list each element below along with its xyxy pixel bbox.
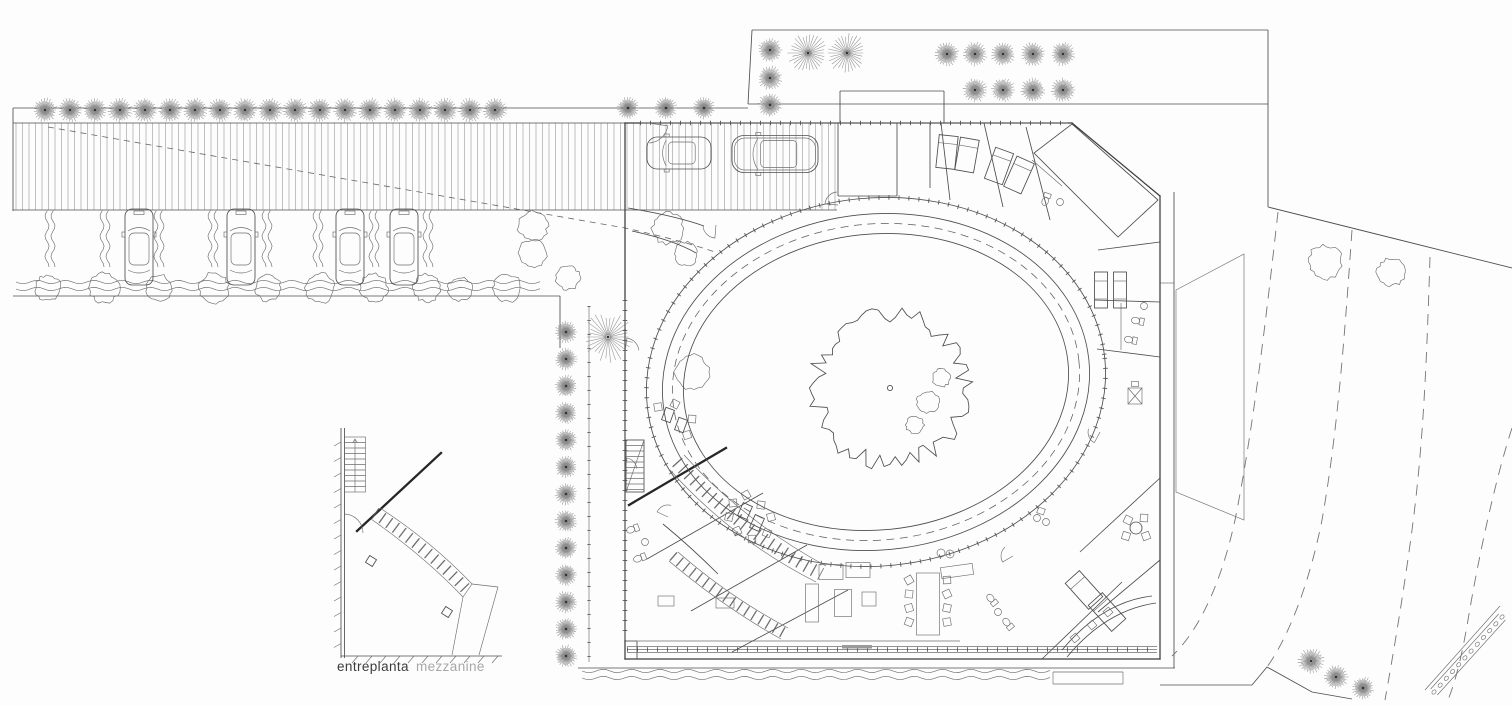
bush-icon xyxy=(146,275,172,302)
toilet-tank xyxy=(1132,337,1138,345)
fixture-circle xyxy=(1057,199,1064,206)
tree-trunk xyxy=(974,89,977,92)
furniture-rect xyxy=(806,584,819,622)
curved-stair-band xyxy=(669,552,788,639)
inset-band-line xyxy=(479,587,498,655)
car-rear-window xyxy=(339,270,361,273)
door-swing-arc xyxy=(657,505,671,517)
boundary-line xyxy=(1425,606,1500,690)
chair-icon xyxy=(670,399,680,409)
tree-trunk xyxy=(1002,53,1005,56)
tree-icon xyxy=(59,98,81,122)
tree-trunk xyxy=(974,53,977,56)
climber-strip xyxy=(160,211,164,267)
bed-frame xyxy=(936,135,958,170)
toilet-icon xyxy=(633,553,647,564)
gravel-stone xyxy=(1487,628,1493,634)
tree-trunk xyxy=(319,109,322,112)
tree-trunk xyxy=(1062,89,1065,92)
chair-icon xyxy=(942,589,952,599)
lounger-frame xyxy=(1095,272,1108,308)
partition-wall xyxy=(1042,582,1122,659)
tree-trunk xyxy=(444,109,447,112)
tree-icon xyxy=(935,43,959,67)
tree-spokes xyxy=(787,35,825,71)
tree-trunk xyxy=(565,628,568,631)
chair-icon xyxy=(732,526,742,536)
furniture-rect xyxy=(835,590,852,617)
tree-trunk xyxy=(469,109,472,112)
hedge-line xyxy=(582,669,1050,672)
car-mirror xyxy=(333,232,336,237)
partition-wall xyxy=(1098,242,1160,250)
inset-door-arc xyxy=(345,514,364,533)
gravel-stone xyxy=(1443,675,1449,681)
tree-icon xyxy=(556,618,577,639)
climber-strip xyxy=(268,211,272,267)
fixture-circle xyxy=(1043,519,1050,526)
furniture-rect xyxy=(1132,382,1139,387)
car-roof xyxy=(231,233,251,265)
tree-trunk xyxy=(769,49,772,52)
tree-trunk xyxy=(369,109,372,112)
bed-frame xyxy=(1004,156,1035,194)
toilet-bowl xyxy=(985,593,995,604)
boundary-line xyxy=(1268,207,1512,268)
toilet-tank xyxy=(633,524,640,532)
gravel-stone xyxy=(1462,655,1468,661)
car-plate xyxy=(399,211,409,215)
tree-icon xyxy=(458,98,482,123)
site-plan-drawing: entreplantamezzanine xyxy=(0,0,1512,706)
climber-strip xyxy=(313,211,317,267)
mezzanine-inset-layer xyxy=(334,428,502,663)
car-mirror xyxy=(387,232,390,237)
tree-trunk xyxy=(119,109,122,112)
tree-icon xyxy=(1021,78,1046,102)
fixture-circle xyxy=(995,609,1002,616)
bush-icon xyxy=(1376,258,1406,287)
car-windshield xyxy=(230,228,252,232)
road-dashed-edge xyxy=(1385,257,1430,700)
tree-icon xyxy=(555,565,577,586)
east-deck-hatch xyxy=(1176,254,1244,520)
car-roof xyxy=(394,233,414,265)
tree-icon xyxy=(308,99,331,122)
bed-icon xyxy=(936,135,958,170)
tree-trunk xyxy=(244,109,247,112)
tree-trunk xyxy=(94,109,97,112)
tree-trunk xyxy=(44,109,47,112)
tree-icon xyxy=(1324,666,1349,690)
tree-trunk xyxy=(1032,89,1035,92)
tree-icon xyxy=(759,38,783,62)
tree-trunk xyxy=(769,77,772,80)
tree-trunk xyxy=(565,331,568,334)
gravel-stone xyxy=(1474,641,1480,647)
door-swing-arc xyxy=(1001,547,1013,562)
inset-stair xyxy=(345,437,366,492)
tree-icon xyxy=(434,98,457,122)
climber-strip xyxy=(51,211,55,267)
roof-terrace-crosshatch xyxy=(1034,124,1158,237)
car-top-icon xyxy=(333,209,367,285)
tree-icon xyxy=(555,375,576,396)
tree-icon xyxy=(1022,42,1045,65)
south-boundary-line xyxy=(1160,667,1352,699)
tree-icon xyxy=(1352,677,1374,700)
gravel-stone xyxy=(1468,648,1474,654)
climber-strip xyxy=(106,211,110,267)
toilet-tank xyxy=(640,553,647,561)
tree-icon xyxy=(1052,42,1075,66)
courtyard-tree-foliage xyxy=(933,369,951,388)
inset-wall-tick xyxy=(334,628,341,632)
inset-wall-tick xyxy=(334,613,341,617)
bed-frame xyxy=(984,147,1013,185)
tree-trunk xyxy=(846,52,849,55)
furniture-rect xyxy=(917,573,940,635)
tree-icon xyxy=(333,98,357,122)
tree-icon xyxy=(963,42,987,67)
furniture-rect xyxy=(846,563,870,578)
tree-icon xyxy=(158,99,182,122)
entry-mat xyxy=(842,645,872,649)
furniture-rect xyxy=(1070,633,1080,643)
tree-icon xyxy=(555,483,577,505)
car-windshield xyxy=(393,228,415,232)
path-entry-curve xyxy=(663,524,718,574)
courtyard-tree-canopy xyxy=(809,308,972,469)
inset-wall-tick xyxy=(334,535,341,539)
inset-band-line xyxy=(452,597,463,655)
inset-wall-tick xyxy=(334,520,341,524)
climber-strip xyxy=(423,211,427,267)
bed-frame xyxy=(1088,593,1126,632)
car-mirror xyxy=(255,232,258,237)
tree-trunk xyxy=(607,336,610,339)
inset-post xyxy=(441,606,452,617)
climber-strip xyxy=(100,211,104,267)
car-plate xyxy=(345,211,355,215)
partition-wall xyxy=(647,493,763,559)
chair-icon xyxy=(757,501,765,509)
tree-icon xyxy=(556,591,577,613)
partition-wall xyxy=(1094,300,1160,302)
tree-trunk xyxy=(627,107,630,110)
toilet-icon xyxy=(985,593,999,607)
car-roof xyxy=(340,233,360,265)
road-dashed-edge xyxy=(1267,230,1352,667)
bed-icon xyxy=(1088,593,1126,632)
climber-strip xyxy=(319,211,323,267)
climber-strip xyxy=(214,211,218,267)
courtyard-facade xyxy=(628,175,1124,589)
tree-icon xyxy=(555,348,577,371)
climber-strip xyxy=(208,211,212,267)
car-rear-window xyxy=(230,270,252,273)
bed-pillow-line xyxy=(959,145,978,148)
bush-icon xyxy=(674,354,710,390)
chair-icon xyxy=(905,590,913,598)
inset-band-treads xyxy=(375,513,467,590)
path-center-dashed xyxy=(657,204,1096,561)
toilet-icon xyxy=(1124,335,1138,344)
toilet-icon xyxy=(1131,316,1145,325)
band-treads xyxy=(677,462,821,574)
tree-icon xyxy=(556,429,577,451)
inset-bold-wall xyxy=(357,453,441,531)
car-top-icon xyxy=(122,209,156,285)
inset-band-edge xyxy=(371,519,463,597)
gravel-strip-edge xyxy=(1431,614,1506,695)
furniture-rect xyxy=(862,592,876,606)
courtyard-tree-trunk xyxy=(887,385,892,390)
road-dashed-edge xyxy=(1172,212,1278,656)
chair-icon xyxy=(654,403,663,412)
toilet-icon xyxy=(626,524,640,535)
climber-strip xyxy=(154,211,158,267)
tree-icon xyxy=(483,98,507,121)
door-swing-arc xyxy=(625,458,637,470)
inset-wall-tick xyxy=(334,442,341,446)
tree-trunk xyxy=(565,601,568,604)
tree-trunk xyxy=(1310,660,1313,663)
toilet-tank xyxy=(990,599,998,607)
partition-wall xyxy=(1032,160,1062,186)
toilet-icon xyxy=(1001,617,1015,631)
fixture-circle xyxy=(642,539,649,546)
courtyard-tree-foliage xyxy=(905,416,924,433)
tree-icon xyxy=(991,43,1014,65)
courtyard-facade-arc xyxy=(628,175,1124,589)
car-mirror xyxy=(224,232,227,237)
car-windshield xyxy=(339,228,361,232)
toilet-tank xyxy=(1139,318,1145,326)
site-plan-svg xyxy=(0,0,1512,706)
lounger-icon xyxy=(1114,272,1127,308)
hedge-line xyxy=(16,287,540,290)
tree-trunk xyxy=(1002,89,1005,92)
climber-strip xyxy=(369,211,373,267)
car-mirror xyxy=(364,232,367,237)
tree-icon xyxy=(555,402,576,424)
tree-sparse-icon xyxy=(787,35,825,71)
tree-trunk xyxy=(807,52,810,55)
partition-wall xyxy=(1097,349,1160,357)
chair-icon xyxy=(943,604,952,613)
tree-icon xyxy=(555,537,577,558)
inset-wall-tick xyxy=(334,597,341,601)
tree-trunk xyxy=(344,109,347,112)
bush-icon xyxy=(518,239,547,267)
bed-icon xyxy=(955,137,979,173)
inset-wall-tick xyxy=(334,644,341,648)
chair-icon xyxy=(1121,531,1130,540)
bed-pillow-line xyxy=(1071,577,1085,590)
bush-icon xyxy=(555,266,581,290)
tree-icon xyxy=(108,98,132,123)
band-edge xyxy=(678,552,788,628)
tree-trunk xyxy=(1362,687,1365,690)
tree-trunk xyxy=(69,109,72,112)
bush-icon xyxy=(517,210,549,241)
partition-wall xyxy=(1026,127,1050,220)
gravel-stone xyxy=(1499,614,1505,620)
furniture-rect xyxy=(1087,620,1097,630)
tree-sparse-icon xyxy=(828,33,863,72)
tree-trunk xyxy=(565,385,568,388)
fixture-circle xyxy=(937,549,945,557)
tree-trunk xyxy=(1032,53,1035,56)
path-entry-curve xyxy=(628,208,704,226)
band-edge xyxy=(669,561,781,639)
chair-icon xyxy=(943,618,952,627)
inset-wall-tick xyxy=(334,582,341,586)
lounger-icon xyxy=(1095,272,1108,308)
boundary-line xyxy=(748,30,752,104)
table-icon xyxy=(675,417,688,432)
tree-spokes xyxy=(586,315,633,363)
car-windshield xyxy=(128,228,150,232)
car-top-icon xyxy=(387,209,421,285)
tree-trunk xyxy=(565,493,568,496)
gravel-stone xyxy=(1456,662,1462,668)
access-roads-layer xyxy=(1172,212,1512,700)
tree-trunk xyxy=(565,358,568,361)
car-plate xyxy=(236,211,246,215)
tree-trunk xyxy=(565,655,568,658)
tree-trunk xyxy=(194,109,197,112)
chair-icon xyxy=(766,512,775,521)
fixture-circle xyxy=(1141,303,1148,310)
gravel-stone xyxy=(1437,682,1443,688)
bush-icon xyxy=(447,277,472,301)
furniture-layer xyxy=(626,135,1151,649)
curved-stair-band xyxy=(670,455,826,582)
tree-icon xyxy=(655,97,677,119)
tree-icon xyxy=(133,98,157,121)
tree-trunk xyxy=(1062,53,1065,56)
hedge-line xyxy=(582,676,1050,679)
tree-icon xyxy=(283,98,307,121)
tree-icon xyxy=(233,98,257,121)
car-plate xyxy=(134,211,144,215)
tree-trunk xyxy=(565,466,568,469)
building-wall xyxy=(1072,123,1160,196)
inset-wall-tick xyxy=(334,504,341,508)
chair-icon xyxy=(904,617,914,627)
car-mirror xyxy=(418,232,421,237)
toilet-tank xyxy=(1006,623,1014,631)
climber-strip xyxy=(375,211,379,267)
tree-trunk xyxy=(419,109,422,112)
tree-icon xyxy=(408,98,432,122)
bed-icon xyxy=(1065,571,1103,610)
bush-icon xyxy=(198,273,229,305)
tree-icon xyxy=(556,645,578,667)
tree-trunk xyxy=(219,109,222,112)
tree-icon xyxy=(1051,78,1075,102)
tree-icon xyxy=(83,98,107,122)
tree-icon xyxy=(383,98,406,122)
bush-icon xyxy=(1308,244,1342,280)
facade-glazing-mullions xyxy=(628,175,1124,589)
climber-strip xyxy=(45,211,49,267)
tree-trunk xyxy=(565,547,568,550)
tree-icon xyxy=(991,79,1015,102)
bed-icon xyxy=(984,147,1013,185)
tree-icon xyxy=(617,97,639,119)
tree-icon xyxy=(963,79,987,103)
tree-icon xyxy=(555,511,577,532)
inset-band-line xyxy=(463,584,472,597)
inset-band-line xyxy=(472,584,498,587)
gravel-stone xyxy=(1431,689,1437,695)
car-rear-window xyxy=(393,270,415,273)
tree-icon xyxy=(358,98,382,122)
inset-wall-tick xyxy=(334,473,341,477)
tree-trunk xyxy=(565,574,568,577)
car-rear-window xyxy=(128,270,150,273)
bed-pillow-line xyxy=(938,143,957,145)
gravel-stone xyxy=(1481,634,1487,640)
lounger-frame xyxy=(1114,272,1127,308)
partition-wall xyxy=(732,590,848,652)
furniture-rect xyxy=(658,596,674,606)
tree-trunk xyxy=(565,520,568,523)
bush-icon xyxy=(304,272,335,303)
tree-icon xyxy=(1298,649,1325,673)
tree-trunk xyxy=(703,107,706,110)
tree-trunk xyxy=(665,107,668,110)
tree-icon xyxy=(759,66,782,90)
tree-trunk xyxy=(294,109,297,112)
hedge-line xyxy=(16,280,540,283)
toilet-bowl xyxy=(626,525,636,534)
chair-icon xyxy=(1140,514,1148,522)
floor-label: entreplantamezzanine xyxy=(337,659,485,674)
staircase xyxy=(626,440,644,492)
car-mirror xyxy=(122,232,125,237)
bush-icon xyxy=(675,241,698,265)
chair-icon xyxy=(904,575,914,585)
fixture-circle xyxy=(1034,515,1041,522)
tree-trunk xyxy=(169,109,172,112)
bed-pillow-line xyxy=(993,155,1011,161)
tree-trunk xyxy=(769,104,772,107)
bed-icon xyxy=(1004,156,1035,194)
inset-band-edge xyxy=(380,508,472,584)
furniture-rect xyxy=(1037,507,1046,515)
tree-trunk xyxy=(946,53,949,56)
climber-strip xyxy=(429,211,433,267)
floor-label-primary: entreplanta xyxy=(337,659,409,674)
inset-wall-tick xyxy=(334,551,341,555)
gravel-stone xyxy=(1493,621,1499,627)
tree-trunk xyxy=(494,109,497,112)
tree-trunk xyxy=(565,412,568,415)
toilet-bowl xyxy=(633,554,643,563)
floor-label-secondary: mezzanine xyxy=(416,659,485,674)
tree-icon xyxy=(34,98,57,122)
timber-deck-hatch xyxy=(13,123,837,210)
inset-wall-tick xyxy=(334,489,341,493)
tree-trunk xyxy=(144,109,147,112)
tree-sparse-icon xyxy=(586,315,633,363)
tree-icon xyxy=(184,98,207,122)
car-top-icon xyxy=(224,209,258,285)
